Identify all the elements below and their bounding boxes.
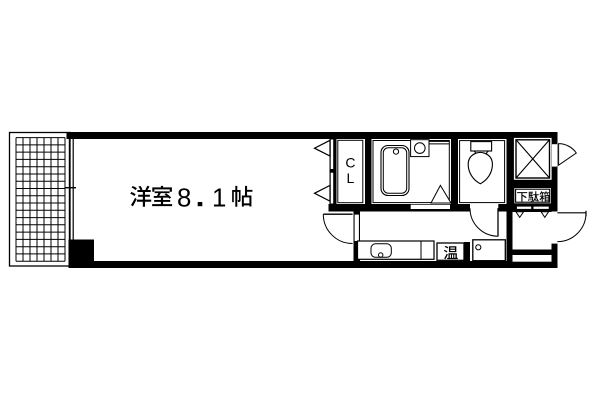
svg-text:1: 1 xyxy=(212,184,226,212)
svg-text:L: L xyxy=(347,170,355,186)
svg-text:8: 8 xyxy=(177,184,191,212)
svg-text:C: C xyxy=(345,155,355,171)
